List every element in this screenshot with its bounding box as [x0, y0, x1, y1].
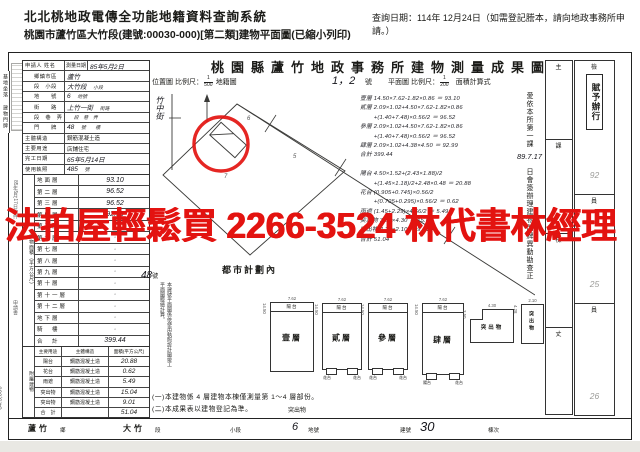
signoff-box: 檢賦予辦行92: [574, 60, 615, 195]
dimension-side: 14.50: [262, 303, 267, 371]
survey-date-label: 測量日期: [65, 61, 88, 70]
attached-cell: 20.88: [109, 357, 149, 366]
note-line-2: (二)本成果表以建物登記為準。: [152, 403, 252, 413]
building-number-label: 建號: [400, 426, 411, 434]
floor-area-row: 第十二層·: [35, 301, 149, 312]
parcel-mark-5: 5: [293, 154, 296, 160]
attached-header-cell: 面積(平方公尺): [109, 347, 149, 356]
info-row: 申請人 姓名測量日期85年5月2日: [23, 61, 149, 71]
floor-area-value: ·: [79, 303, 149, 310]
info-row: 主體構造鋼筋混凝土造: [23, 134, 149, 144]
floor-plan-3: 陽台參層7.6214.50花台花台: [368, 303, 408, 370]
floor-area-value: ·: [79, 291, 149, 298]
info-row-label: 街 路: [23, 102, 65, 111]
info-row: 使用執照485 號: [23, 165, 149, 174]
calc-line: 參層 2.09×1.02+4.50×7.62-1.82×0.86: [360, 123, 522, 132]
attached-cell: 51.04: [109, 408, 149, 417]
attached-header-cell: 主要用途: [35, 347, 62, 356]
parcel-mark-6: 6: [247, 116, 250, 122]
attached-cell: 5.49: [109, 377, 149, 386]
floor-label: 第十二層: [35, 301, 79, 311]
plan-tab: [449, 373, 460, 380]
floor-area-row: 第十一層·: [35, 290, 149, 301]
info-row-value: 段 巷 弄: [65, 114, 149, 121]
info-row: 街 路上竹一街 街路: [23, 102, 149, 112]
plan-tab: [326, 368, 337, 375]
floor-area-row: 地下層·: [35, 313, 149, 324]
attached-cell: 9.01: [109, 398, 149, 407]
info-row: 完工日期65年5月14日: [23, 154, 149, 164]
attached-row: 花台鋼筋混凝土造0.62: [35, 367, 149, 377]
dimension-top: 4.30: [471, 303, 513, 308]
floor-area-row: 合 計399.44: [35, 336, 149, 346]
plan-notch: [470, 309, 483, 320]
parcel-mark-7: 7: [224, 174, 227, 180]
attached-cell: 花台: [35, 367, 62, 376]
attached-cell: 突出物: [35, 388, 62, 397]
signoff-header: 檢: [575, 61, 614, 71]
floor-label: 第二層: [35, 186, 79, 196]
signoff-header: 課: [546, 140, 572, 150]
calc-line: +(1.40+7.48)×0.56/2 ＝ 96.52: [360, 133, 522, 142]
info-row-label: 地 號: [23, 92, 65, 101]
section-suffix: 段: [155, 426, 161, 434]
attached-row: 雨遮鋼筋混凝土造5.49: [35, 377, 149, 387]
cadastral-map-label: 地籍圖: [216, 79, 237, 86]
attached-cell: 雨遮: [35, 377, 62, 386]
document-subtitle: 桃園市蘆竹區大竹段(建號:00030-000)[第二類]建物平面圖(已縮小列印): [24, 27, 351, 42]
attached-header-cell: 主體構造: [62, 347, 109, 356]
signoff-stamp-mark: 92: [575, 170, 614, 180]
info-row-label: 鄉鎮市區: [23, 71, 65, 80]
floor-label: 合 計: [35, 336, 79, 346]
info-row-value: 65年5月14日: [65, 154, 149, 164]
dimension-top: 7.62: [271, 296, 313, 301]
floor-label: 騎 樓: [35, 324, 79, 334]
calc-line: +(1.40+7.48)×0.56/2 ＝ 96.52: [360, 114, 522, 123]
info-row: 段 巷 弄 段 巷 弄: [23, 113, 149, 123]
calc-line: 肆層 2.09×1.02+4.38×4.50 ＝ 92.99: [360, 142, 522, 151]
info-row: 段 小段大竹段 小段: [23, 82, 149, 92]
info-row-value: 85年5月2日: [88, 61, 149, 71]
section-name: 大竹: [123, 423, 145, 434]
attached-row: 突出物鋼筋混凝土造9.01: [35, 398, 149, 408]
scale-fraction-200: 1200: [440, 76, 449, 88]
floor-plan-label: 壹層: [271, 333, 313, 344]
info-row-suffix: 地號: [73, 95, 87, 100]
town-name: 蘆竹: [28, 423, 50, 434]
signoff-header: 主: [546, 61, 572, 71]
signoff-box: 主: [545, 60, 573, 140]
attached-cell: 鋼筋混凝土造: [62, 398, 109, 407]
attached-cell: 鋼筋混凝土造: [62, 388, 109, 397]
floor-label: 地面層: [35, 175, 79, 185]
realtor-watermark: 法拍屋輕鬆買 2266-3524 林代書林經理: [5, 197, 617, 249]
plan-tab-label: 花台: [369, 375, 377, 381]
signoff-stamp-mark: 25: [575, 279, 614, 289]
floor-area-value: ·: [79, 280, 149, 287]
attached-row: 陽台鋼筋混凝土造20.88: [35, 357, 149, 367]
signoff-header: 員: [575, 304, 614, 314]
attached-cell: 0.62: [109, 367, 149, 376]
system-title: 北北桃地政電傳全功能地籍資料查詢系統: [24, 6, 267, 25]
plan-label: 平面圖: [388, 79, 409, 86]
dimension-side: 14.50: [414, 304, 419, 374]
plan-tab: [347, 368, 358, 375]
floor-area-row: 第九層·: [35, 267, 149, 278]
info-row: 門 牌48 號 樓: [23, 123, 149, 133]
parcel-number: 6: [292, 421, 298, 433]
site-location-group-label: 基地坐落: [0, 71, 10, 102]
map-sheet-unit: 號: [365, 77, 372, 87]
form-code: 84.5,000: [0, 386, 4, 409]
attached-cell: 陽台: [35, 357, 62, 366]
floor-label: 第十層: [35, 278, 79, 288]
note-line-1: (一)本建物係 4 層建物本棟僅測量第 1～4 層部份。: [152, 391, 319, 401]
floor-plan-label: 突出物: [528, 311, 535, 332]
building-number: 30: [420, 419, 434, 434]
floor-label: 第九層: [35, 267, 79, 277]
signoff-box: 員26: [574, 303, 615, 416]
info-row-label: 申請人 姓名: [23, 61, 65, 70]
floor-plan-5: 突出物4.303.50: [470, 309, 514, 343]
info-row-value: 48 號 樓: [65, 124, 149, 131]
plan-tab-label: 花台: [353, 375, 361, 381]
info-row-value: 大竹段 小段: [65, 82, 149, 92]
info-row-label: 門 牌: [23, 123, 65, 132]
floor-area-value: ·: [79, 257, 149, 264]
registry-printout-page: 北北桃地政電傳全功能地籍資料查詢系統 查詢日期：114年 12月24日（如需登記…: [0, 0, 640, 452]
info-row-suffix: 號: [80, 168, 90, 173]
application-note: 申請書: [12, 300, 19, 330]
plan-tab-label: 陽台: [423, 380, 431, 386]
floor-plan-label: 參層: [369, 332, 407, 343]
calc-line: [360, 161, 522, 170]
dimension-side: 14.50: [360, 304, 365, 369]
floor-plan-2: 陽台貳層7.6214.50花台花台: [322, 303, 362, 370]
annotation-pre: 愛依本所第一課: [524, 92, 534, 152]
info-row-suffix: 段 巷 弄: [69, 116, 98, 121]
info-row-value: 上竹一街 街路: [65, 102, 149, 112]
floor-area-value: ·: [79, 314, 149, 321]
balcony-strip: 陽台: [423, 304, 463, 313]
annotation-date: 89.7.17: [517, 152, 542, 161]
info-row-label: 主體構造: [23, 134, 65, 143]
dimension-top: 7.62: [423, 297, 463, 302]
attached-building-section: 附屬建物 主要用途主體構造面積(平方公尺)陽台鋼筋混凝土造20.88花台鋼筋混凝…: [22, 347, 150, 418]
attached-row: 突出物鋼筋混凝土造15.04: [35, 388, 149, 398]
dimension-side: 14.50: [314, 304, 319, 369]
balcony-strip: 陽台: [323, 304, 361, 313]
floor-plan-label: 貳層: [323, 332, 361, 343]
floor-area-row: 騎 樓·: [35, 324, 149, 335]
info-row-value: 蘆竹: [65, 71, 149, 81]
dimension-top: 7.62: [369, 297, 407, 302]
calc-line: +(1.45×1.18)/2+2.48×0.48 ＝ 20.88: [360, 180, 522, 189]
plan-tab-label: 花台: [455, 380, 463, 386]
plan-tab: [393, 368, 404, 375]
floor-label: 第八層: [35, 255, 79, 265]
protrusion-note-label: 突出物: [288, 405, 306, 414]
floor-area-value: 399.44: [79, 337, 149, 344]
query-date: 查詢日期：114年 12月24日（如需登記謄本，請向地政事務所申請。）: [372, 11, 640, 37]
floor-label: 地下層: [35, 313, 79, 323]
calc-line: 陽台 4.50×1.52+(2.43×1.88)/2: [360, 170, 522, 179]
floor-area-value: ·: [79, 326, 149, 333]
floor-label: 第十一層: [35, 290, 79, 300]
balcony-strip: 陽台: [271, 303, 313, 312]
info-row-value: 6 地號: [65, 93, 149, 100]
floor-area-row: 第八層·: [35, 255, 149, 266]
north-arrow-icon: [204, 94, 210, 122]
parcel-suffix: 地號: [308, 426, 319, 434]
calc-line: 合計 399.44: [360, 151, 522, 160]
scale-label-2: 比例尺：: [411, 79, 439, 86]
info-row-value: 鋼筋混凝土造: [65, 134, 149, 142]
balcony-strip: 陽台: [369, 304, 407, 313]
area-calc-label: 面積計算式: [456, 79, 491, 86]
scale-label: 比例尺：: [175, 79, 203, 86]
info-row: 地 號6 地號: [23, 92, 149, 102]
calc-line: 壹層 14.50×7.62-1.82×0.86 ＝ 93.10: [360, 95, 522, 104]
floor-area-value: 96.52: [79, 188, 149, 195]
attached-cell: [62, 408, 109, 417]
urban-plan-zone-label: 都市計劃內: [222, 263, 277, 276]
plan-tab: [372, 368, 383, 375]
attached-cell: 鋼筋混凝土造: [62, 367, 109, 376]
info-row-suffix: 小段: [89, 86, 103, 91]
survey-chart-title: 桃園縣蘆竹地政事務所建物測量成果圖: [150, 57, 612, 76]
plan-scale: 平面圖 比例尺：1200 面積計算式: [388, 76, 491, 88]
attached-column-label: 附屬建物: [23, 347, 35, 417]
info-row-label: 使用執照: [23, 165, 65, 174]
info-row-label: 主要用途: [23, 144, 65, 153]
subsection-label: 小段: [230, 426, 241, 434]
plan-source-note: 本建號平面圖係依使用執照設計圖竣工平面圖謄繪計算。: [157, 282, 172, 370]
info-row-value: 485 號: [65, 166, 149, 173]
dimension-top: 7.62: [323, 297, 361, 302]
attached-cell: 突出物: [35, 398, 62, 407]
signoff-header: 丈: [546, 328, 572, 338]
house-number-label: 48號: [141, 270, 158, 281]
attached-cell: 鋼筋混凝土造: [62, 377, 109, 386]
dimension-side: 3.50: [462, 310, 467, 342]
info-row-suffix: 街路: [95, 107, 109, 112]
location-map-scale: 位置圖 比例尺：1500 地籍圖: [152, 76, 237, 88]
info-row: 鄉鎮市區蘆竹: [23, 71, 149, 81]
info-row: 主要用途店鋪住宅: [23, 144, 149, 154]
plan-tab: [426, 373, 437, 380]
attached-header-row: 主要用途主體構造面積(平方公尺): [35, 347, 149, 357]
floor-area-row: 地面層93.10: [35, 175, 149, 186]
building-info-table: 申請人 姓名測量日期85年5月2日鄉鎮市區蘆竹段 小段大竹段 小段地 號6 地號…: [22, 60, 150, 175]
attached-cell: 15.04: [109, 388, 149, 397]
signoff-box: 丈: [545, 327, 573, 415]
map-sheet-number: 1，2: [332, 72, 355, 88]
town-suffix: 鄉: [60, 426, 66, 434]
location-map-label: 位置圖: [152, 79, 173, 86]
attached-row: 合 計51.04: [35, 408, 149, 417]
floor-plan-label: 肆層: [423, 335, 463, 346]
red-circle-annotation: [194, 117, 248, 171]
floor-area-value: ·: [79, 268, 149, 275]
floor-plan-label: 突出物: [471, 323, 513, 331]
info-row-value: 店鋪住宅: [65, 145, 149, 153]
bottom-location-strip: 蘆竹 鄉 大竹 段 小段 6 地號 建號 30 棟次: [8, 418, 632, 440]
info-row-label: 完工日期: [23, 154, 65, 163]
plan-tab-label: 花台: [323, 375, 331, 381]
attached-cell: 鋼筋混凝土造: [62, 357, 109, 366]
floor-plan-1: 陽台壹層7.6214.50: [270, 302, 314, 372]
floor-area-value: 93.10: [79, 177, 149, 184]
approval-stamp: 賦予辦行: [586, 74, 603, 130]
unit-label: 棟次: [488, 426, 499, 434]
street-name-label: 竹中街: [154, 96, 165, 138]
floor-plan-4: 陽台肆層7.6214.50陽台花台: [422, 303, 464, 375]
dimension-top: 2.10: [522, 298, 543, 303]
door-plate-group-label: 建物門牌: [0, 102, 10, 133]
plan-tab-label: 花台: [399, 375, 407, 381]
calc-line: 貳層 2.09×1.02+4.50×7.62-1.82×0.86: [360, 104, 522, 113]
dimension-side: 4.28: [513, 305, 518, 343]
scale-fraction-500: 1500: [204, 76, 213, 88]
info-row-label: 段 巷 弄: [23, 113, 65, 122]
info-row-suffix: 號 樓: [76, 126, 100, 131]
attached-cell: 合 計: [35, 408, 62, 417]
floor-plan-6: 突出物2.104.28: [521, 304, 544, 344]
scan-bottom-band: [0, 441, 640, 452]
floor-area-row: 第十層·: [35, 278, 149, 289]
signoff-stamp-mark: 26: [575, 391, 614, 401]
info-row-label: 段 小段: [23, 82, 65, 91]
